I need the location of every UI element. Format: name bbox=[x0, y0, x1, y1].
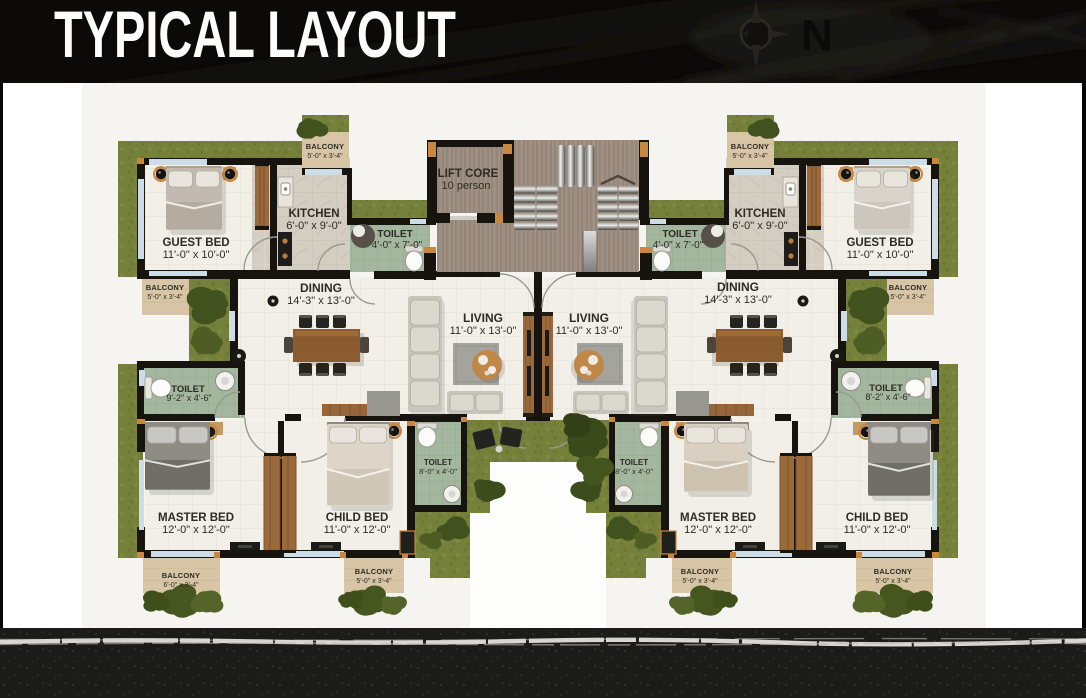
svg-text:KITCHEN: KITCHEN bbox=[734, 208, 785, 220]
svg-text:11'-0" x 13'-0": 11'-0" x 13'-0" bbox=[556, 325, 623, 337]
svg-text:GUEST BED: GUEST BED bbox=[162, 237, 229, 249]
svg-text:5'-0" x 3'-4": 5'-0" x 3'-4" bbox=[682, 578, 718, 585]
svg-text:5'-0" x 3'-4": 5'-0" x 3'-4" bbox=[890, 294, 926, 301]
svg-text:11'-0" x 13'-0": 11'-0" x 13'-0" bbox=[450, 325, 517, 337]
svg-text:11'-0" x 10'-0": 11'-0" x 10'-0" bbox=[847, 249, 914, 261]
svg-text:BALCONY: BALCONY bbox=[306, 142, 344, 151]
svg-text:BALCONY: BALCONY bbox=[731, 142, 769, 151]
svg-text:TYPICAL LAYOUT: TYPICAL LAYOUT bbox=[54, 0, 456, 71]
svg-text:12'-0" x 12'-0": 12'-0" x 12'-0" bbox=[162, 524, 230, 536]
svg-text:BALCONY: BALCONY bbox=[146, 283, 184, 292]
svg-text:DINING: DINING bbox=[717, 280, 759, 294]
svg-text:5'-0" x 3'-4": 5'-0" x 3'-4" bbox=[356, 578, 392, 585]
svg-text:11'-0" x 10'-0": 11'-0" x 10'-0" bbox=[163, 249, 230, 261]
svg-text:BALCONY: BALCONY bbox=[162, 571, 200, 580]
svg-text:14'-3" x 13'-0": 14'-3" x 13'-0" bbox=[704, 294, 772, 306]
svg-text:LIVING: LIVING bbox=[569, 311, 609, 325]
svg-text:BALCONY: BALCONY bbox=[889, 283, 927, 292]
svg-text:11'-0" x 12'-0": 11'-0" x 12'-0" bbox=[324, 524, 391, 536]
svg-text:TOILET: TOILET bbox=[662, 229, 697, 240]
svg-text:MASTER BED: MASTER BED bbox=[158, 512, 234, 524]
svg-text:TOILET: TOILET bbox=[620, 458, 648, 467]
svg-text:TOILET: TOILET bbox=[377, 229, 412, 240]
svg-text:4'-0" x 7'-0": 4'-0" x 7'-0" bbox=[372, 240, 423, 251]
svg-text:6'-0" x 3'-4": 6'-0" x 3'-4" bbox=[163, 582, 199, 589]
svg-text:MASTER BED: MASTER BED bbox=[680, 512, 756, 524]
svg-text:BALCONY: BALCONY bbox=[355, 567, 393, 576]
svg-text:CHILD BED: CHILD BED bbox=[326, 512, 389, 524]
svg-text:8'-0" x 4'-0": 8'-0" x 4'-0" bbox=[615, 467, 653, 476]
svg-text:DINING: DINING bbox=[300, 281, 342, 295]
svg-text:BALCONY: BALCONY bbox=[874, 567, 912, 576]
svg-text:BALCONY: BALCONY bbox=[681, 567, 719, 576]
svg-text:CHILD BED: CHILD BED bbox=[846, 512, 909, 524]
svg-text:5'-0" x 3'-4": 5'-0" x 3'-4" bbox=[732, 153, 768, 160]
svg-text:8'-2" x 4'-6": 8'-2" x 4'-6" bbox=[865, 392, 910, 402]
svg-text:4'-0" x 7'-0": 4'-0" x 7'-0" bbox=[653, 240, 704, 251]
svg-text:LIVING: LIVING bbox=[463, 311, 503, 325]
svg-text:N: N bbox=[801, 11, 833, 60]
svg-text:12'-0" x 12'-0": 12'-0" x 12'-0" bbox=[684, 524, 752, 536]
svg-text:5'-0" x 3'-4": 5'-0" x 3'-4" bbox=[307, 153, 343, 160]
svg-text:TOILET: TOILET bbox=[424, 458, 452, 467]
svg-text:14'-3" x 13'-0": 14'-3" x 13'-0" bbox=[287, 295, 355, 307]
svg-text:6'-0" x 9'-0": 6'-0" x 9'-0" bbox=[732, 220, 788, 232]
svg-text:GUEST BED: GUEST BED bbox=[846, 237, 913, 249]
svg-text:11'-0" x 12'-0": 11'-0" x 12'-0" bbox=[844, 524, 911, 536]
svg-text:5'-0" x 3'-4": 5'-0" x 3'-4" bbox=[875, 578, 911, 585]
svg-text:8'-0" x 4'-0": 8'-0" x 4'-0" bbox=[419, 467, 457, 476]
svg-text:5'-0" x 3'-4": 5'-0" x 3'-4" bbox=[147, 294, 183, 301]
svg-text:9'-2" x 4'-6": 9'-2" x 4'-6" bbox=[166, 393, 211, 403]
svg-text:6'-0" x 9'-0": 6'-0" x 9'-0" bbox=[286, 220, 342, 232]
svg-text:LIFT CORE: LIFT CORE bbox=[438, 168, 499, 180]
svg-text:KITCHEN: KITCHEN bbox=[288, 208, 339, 220]
svg-text:10 person: 10 person bbox=[442, 180, 491, 192]
